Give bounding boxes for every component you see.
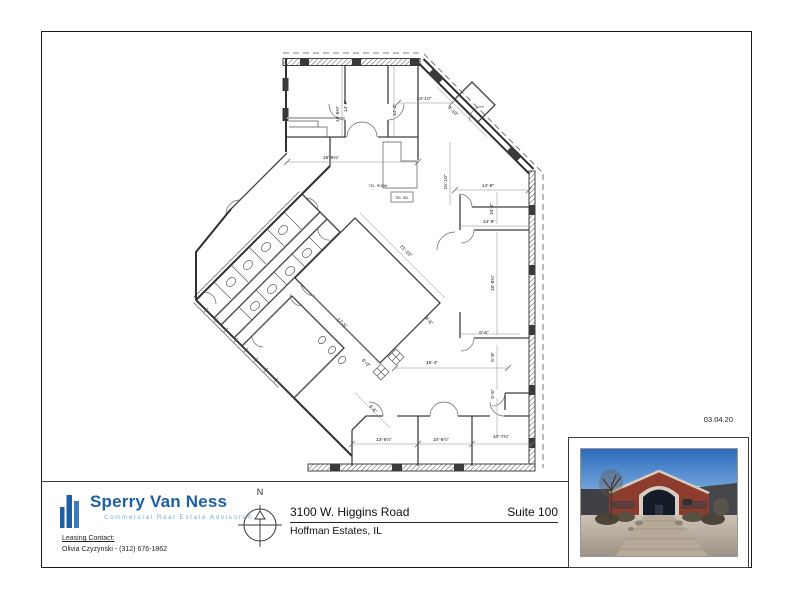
- dimension-label: 17'-5": [335, 317, 348, 330]
- compass-rose-icon: [238, 497, 282, 553]
- property-address: 3100 W. Higgins Road: [290, 505, 409, 519]
- toilet-fixtures: [214, 212, 347, 365]
- dimension-label: 13'-10": [417, 96, 432, 102]
- north-label: N: [238, 487, 282, 497]
- revision-date: 03.04.20: [650, 415, 733, 424]
- company-logo: Sperry Van Ness Commercial Real Estate A…: [60, 492, 253, 530]
- suite-number: Suite 100: [507, 505, 558, 519]
- dimension-label: 14'-5⅜": [335, 106, 341, 123]
- leasing-contact-block: Leasing Contact: Olivia Czyzynski - (312…: [62, 533, 167, 555]
- building-photo: [580, 448, 738, 557]
- dimension-label: 10'-2": [489, 203, 495, 216]
- door-arcs: [204, 104, 505, 416]
- dimension-label: 15'-4": [426, 360, 439, 366]
- dimension-label: 15'-8¾": [490, 275, 496, 292]
- floor-plan: 14'-5⅜"14'-0"14'-0"13'-10"18'-8¾"9'-10"1…: [150, 40, 560, 480]
- leasing-contact-label: Leasing Contact:: [62, 533, 167, 544]
- dimension-label: 6'-0": [360, 358, 371, 369]
- dimension-label: 4'-6": [423, 316, 434, 327]
- property-city: Hoffman Estates, IL: [290, 525, 558, 537]
- dimension-label: 9'-10": [446, 105, 459, 118]
- dimension-label: 10'-8½": [433, 436, 450, 443]
- dimension-label: 14'-0": [343, 100, 349, 113]
- dimension-label: 21'-10": [398, 244, 413, 259]
- compass-north-indicator: N: [238, 487, 282, 558]
- address-row: 3100 W. Higgins Road Suite 100: [290, 505, 558, 523]
- room-label: TEL. ROOM: [369, 184, 388, 188]
- dimension-label: 5'-6": [490, 389, 496, 399]
- dimension-label: 14'-9": [483, 219, 496, 225]
- dimension-label: 10'-7¾": [493, 434, 510, 440]
- lease-line-dashed: [283, 53, 543, 468]
- company-name: Sperry Van Ness: [90, 492, 253, 512]
- dimension-label: 6'-6": [479, 330, 489, 336]
- dimension-label: 15'-10": [443, 174, 449, 189]
- dimension-label: 14'-8": [482, 183, 495, 189]
- leasing-contact-info: Olivia Czyzynski - (312) 676-1862: [62, 544, 167, 555]
- dimension-label: 13'-6½": [376, 436, 393, 443]
- room-label: TEL. BD.: [395, 196, 409, 200]
- dimension-label: 5'-8": [490, 352, 496, 362]
- property-address-block: 3100 W. Higgins Road Suite 100 Hoffman E…: [290, 505, 558, 537]
- dimension-label: 14'-0": [392, 104, 398, 117]
- dimension-labels: 14'-5⅜"14'-0"14'-0"13'-10"18'-8¾"9'-10"1…: [323, 96, 510, 443]
- dimension-label: 4'-6": [367, 404, 378, 415]
- title-block-separator: [41, 481, 568, 482]
- photo-frame: [568, 437, 749, 568]
- sperry-van-ness-logo-icon: [60, 492, 82, 530]
- dimension-label: 18'-8¾": [323, 155, 340, 161]
- flyer-page: 14'-5⅜"14'-0"14'-0"13'-10"18'-8¾"9'-10"1…: [0, 0, 792, 612]
- company-tagline: Commercial Real Estate Advisors®: [104, 514, 253, 521]
